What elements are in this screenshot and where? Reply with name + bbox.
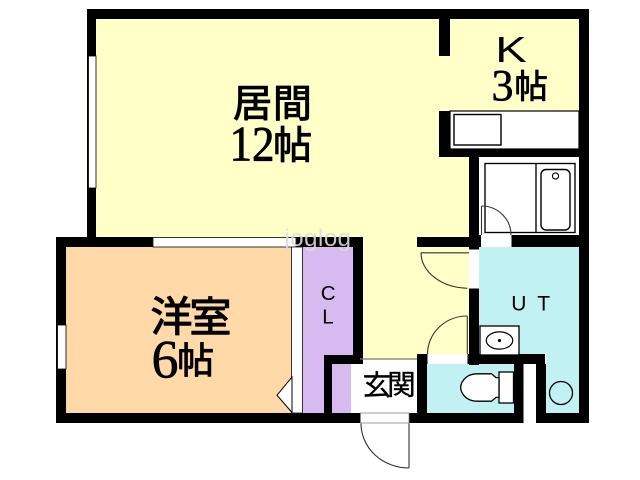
svg-text:C: C (321, 282, 336, 305)
svg-text:12: 12 (230, 116, 275, 172)
svg-text:T: T (537, 293, 550, 316)
svg-text:joglog: joglog (283, 225, 351, 252)
svg-text:3: 3 (492, 61, 514, 110)
svg-text:6: 6 (152, 330, 179, 390)
svg-text:U: U (511, 293, 526, 316)
svg-text:L: L (322, 306, 333, 329)
